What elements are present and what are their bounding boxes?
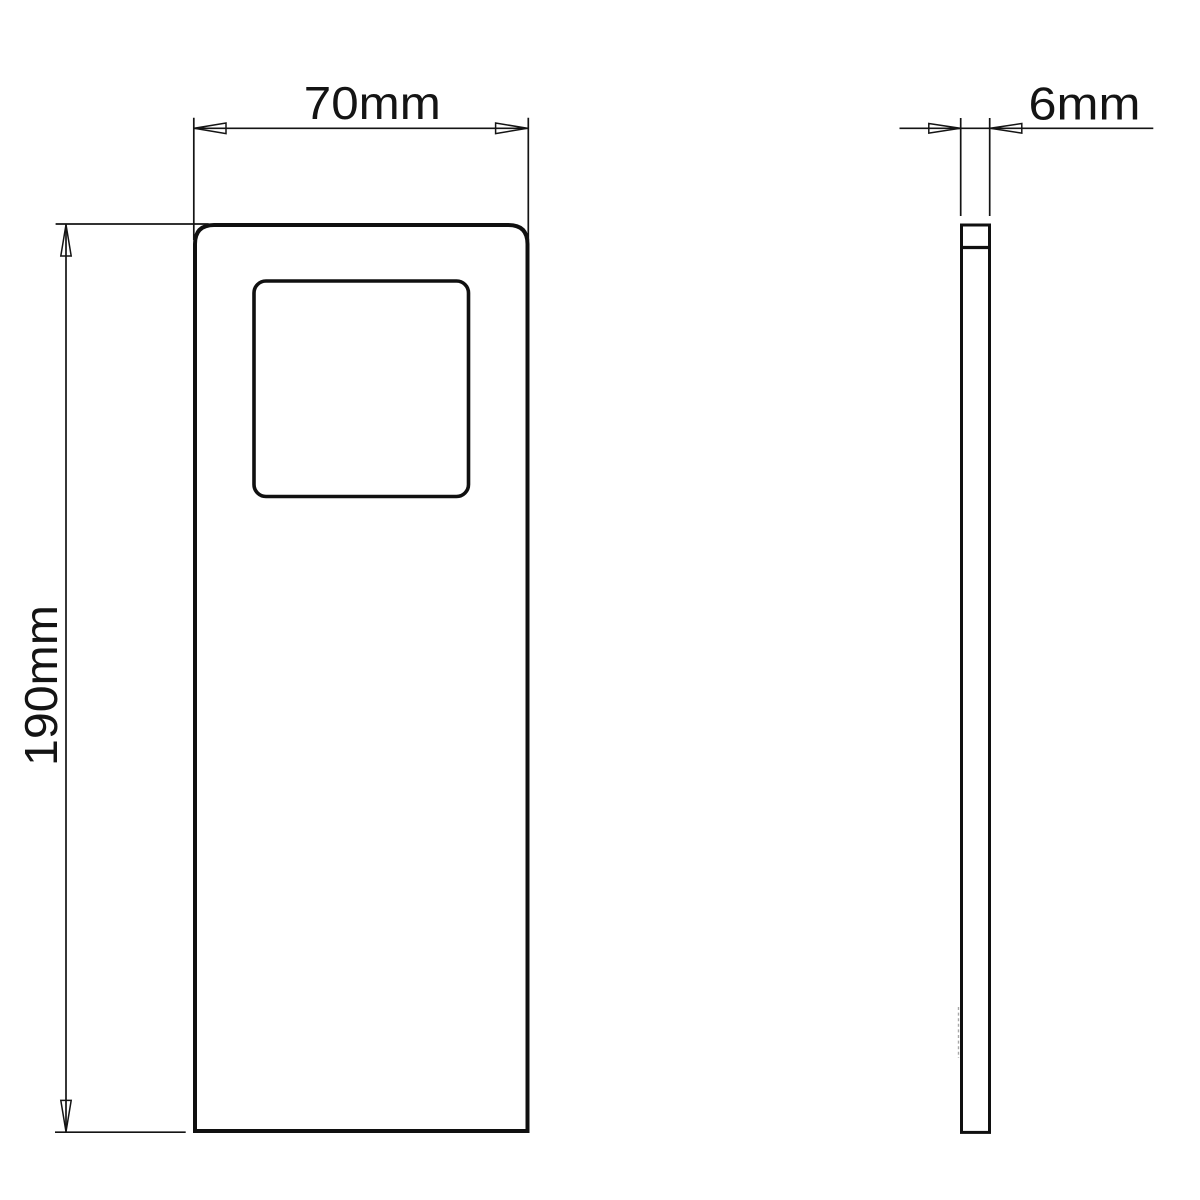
svg-text:70mm: 70mm xyxy=(304,77,441,129)
svg-text:6mm: 6mm xyxy=(1029,78,1141,130)
svg-text:190mm: 190mm xyxy=(15,605,67,766)
